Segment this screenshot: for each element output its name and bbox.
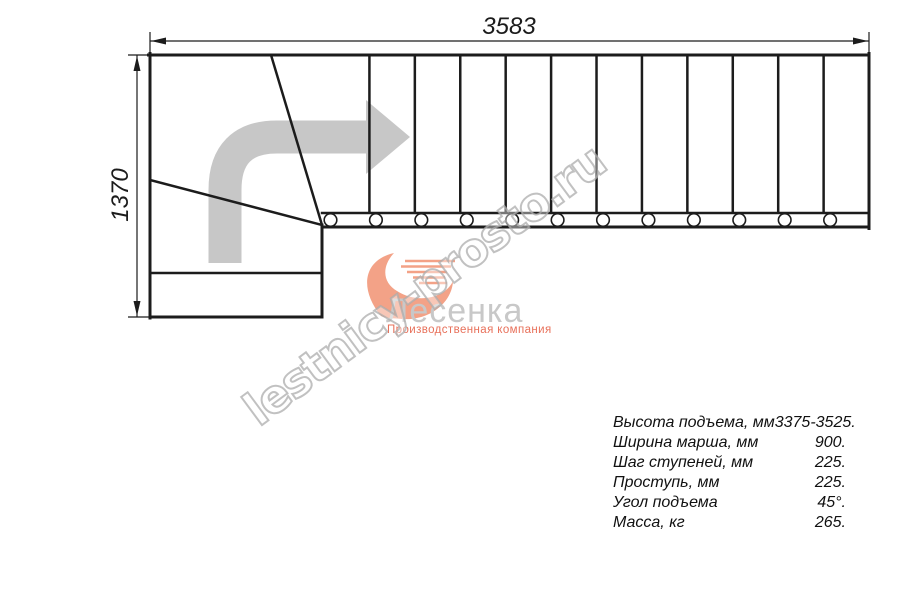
dim-width-label: 3583 <box>482 13 536 40</box>
spec-value: 225. <box>815 473 846 493</box>
specs-table: Высота подъема, мм3375-3525.Ширина марша… <box>613 413 846 533</box>
spec-label: Проступь, мм <box>613 473 719 493</box>
post-circle <box>824 214 837 227</box>
dimension-left: 1370 <box>107 55 149 317</box>
spec-row: Масса, кг265. <box>613 513 846 533</box>
tread-lines <box>369 55 823 213</box>
post-circle <box>642 214 655 227</box>
travel-direction-arrow <box>225 100 410 263</box>
post-circle <box>778 214 791 227</box>
stair-plan-page: 3583 1370 Лесенка Производственная компа… <box>0 0 900 600</box>
spec-value: 225. <box>815 453 846 473</box>
dim-arrow-left-icon <box>151 38 166 45</box>
dim-arrow-up-icon <box>134 56 141 71</box>
post-circle <box>324 214 337 227</box>
post-circle <box>733 214 746 227</box>
spec-row: Угол подъема45°. <box>613 493 846 513</box>
spec-value: 265. <box>815 513 846 533</box>
spec-value: 45°. <box>817 493 846 513</box>
spec-row: Ширина марша, мм900. <box>613 433 846 453</box>
stair-outline <box>149 54 870 319</box>
spec-label: Масса, кг <box>613 513 685 533</box>
spec-value: 900. <box>815 433 846 453</box>
spec-label: Шаг ступеней, мм <box>613 453 753 473</box>
spec-label: Ширина марша, мм <box>613 433 758 453</box>
dim-height-label: 1370 <box>107 168 134 222</box>
post-circle <box>688 214 701 227</box>
spec-row: Проступь, мм225. <box>613 473 846 493</box>
post-circle <box>415 214 428 227</box>
spec-row: Высота подъема, мм3375-3525. <box>613 413 846 433</box>
spec-value: 3375-3525. <box>775 413 856 433</box>
spec-label: Угол подъема <box>613 493 718 513</box>
baluster-posts <box>324 214 836 227</box>
dim-arrow-down-icon <box>134 301 141 316</box>
post-circle <box>551 214 564 227</box>
logo-tagline: Производственная компания <box>387 324 552 336</box>
spec-label: Высота подъема, мм <box>613 413 775 433</box>
dim-arrow-right-icon <box>853 38 868 45</box>
dimension-top: 3583 <box>150 13 869 52</box>
post-circle <box>597 214 610 227</box>
spec-row: Шаг ступеней, мм225. <box>613 453 846 473</box>
arrowhead-icon <box>366 100 410 174</box>
post-circle <box>506 214 519 227</box>
post-circle <box>460 214 473 227</box>
post-circle <box>370 214 383 227</box>
